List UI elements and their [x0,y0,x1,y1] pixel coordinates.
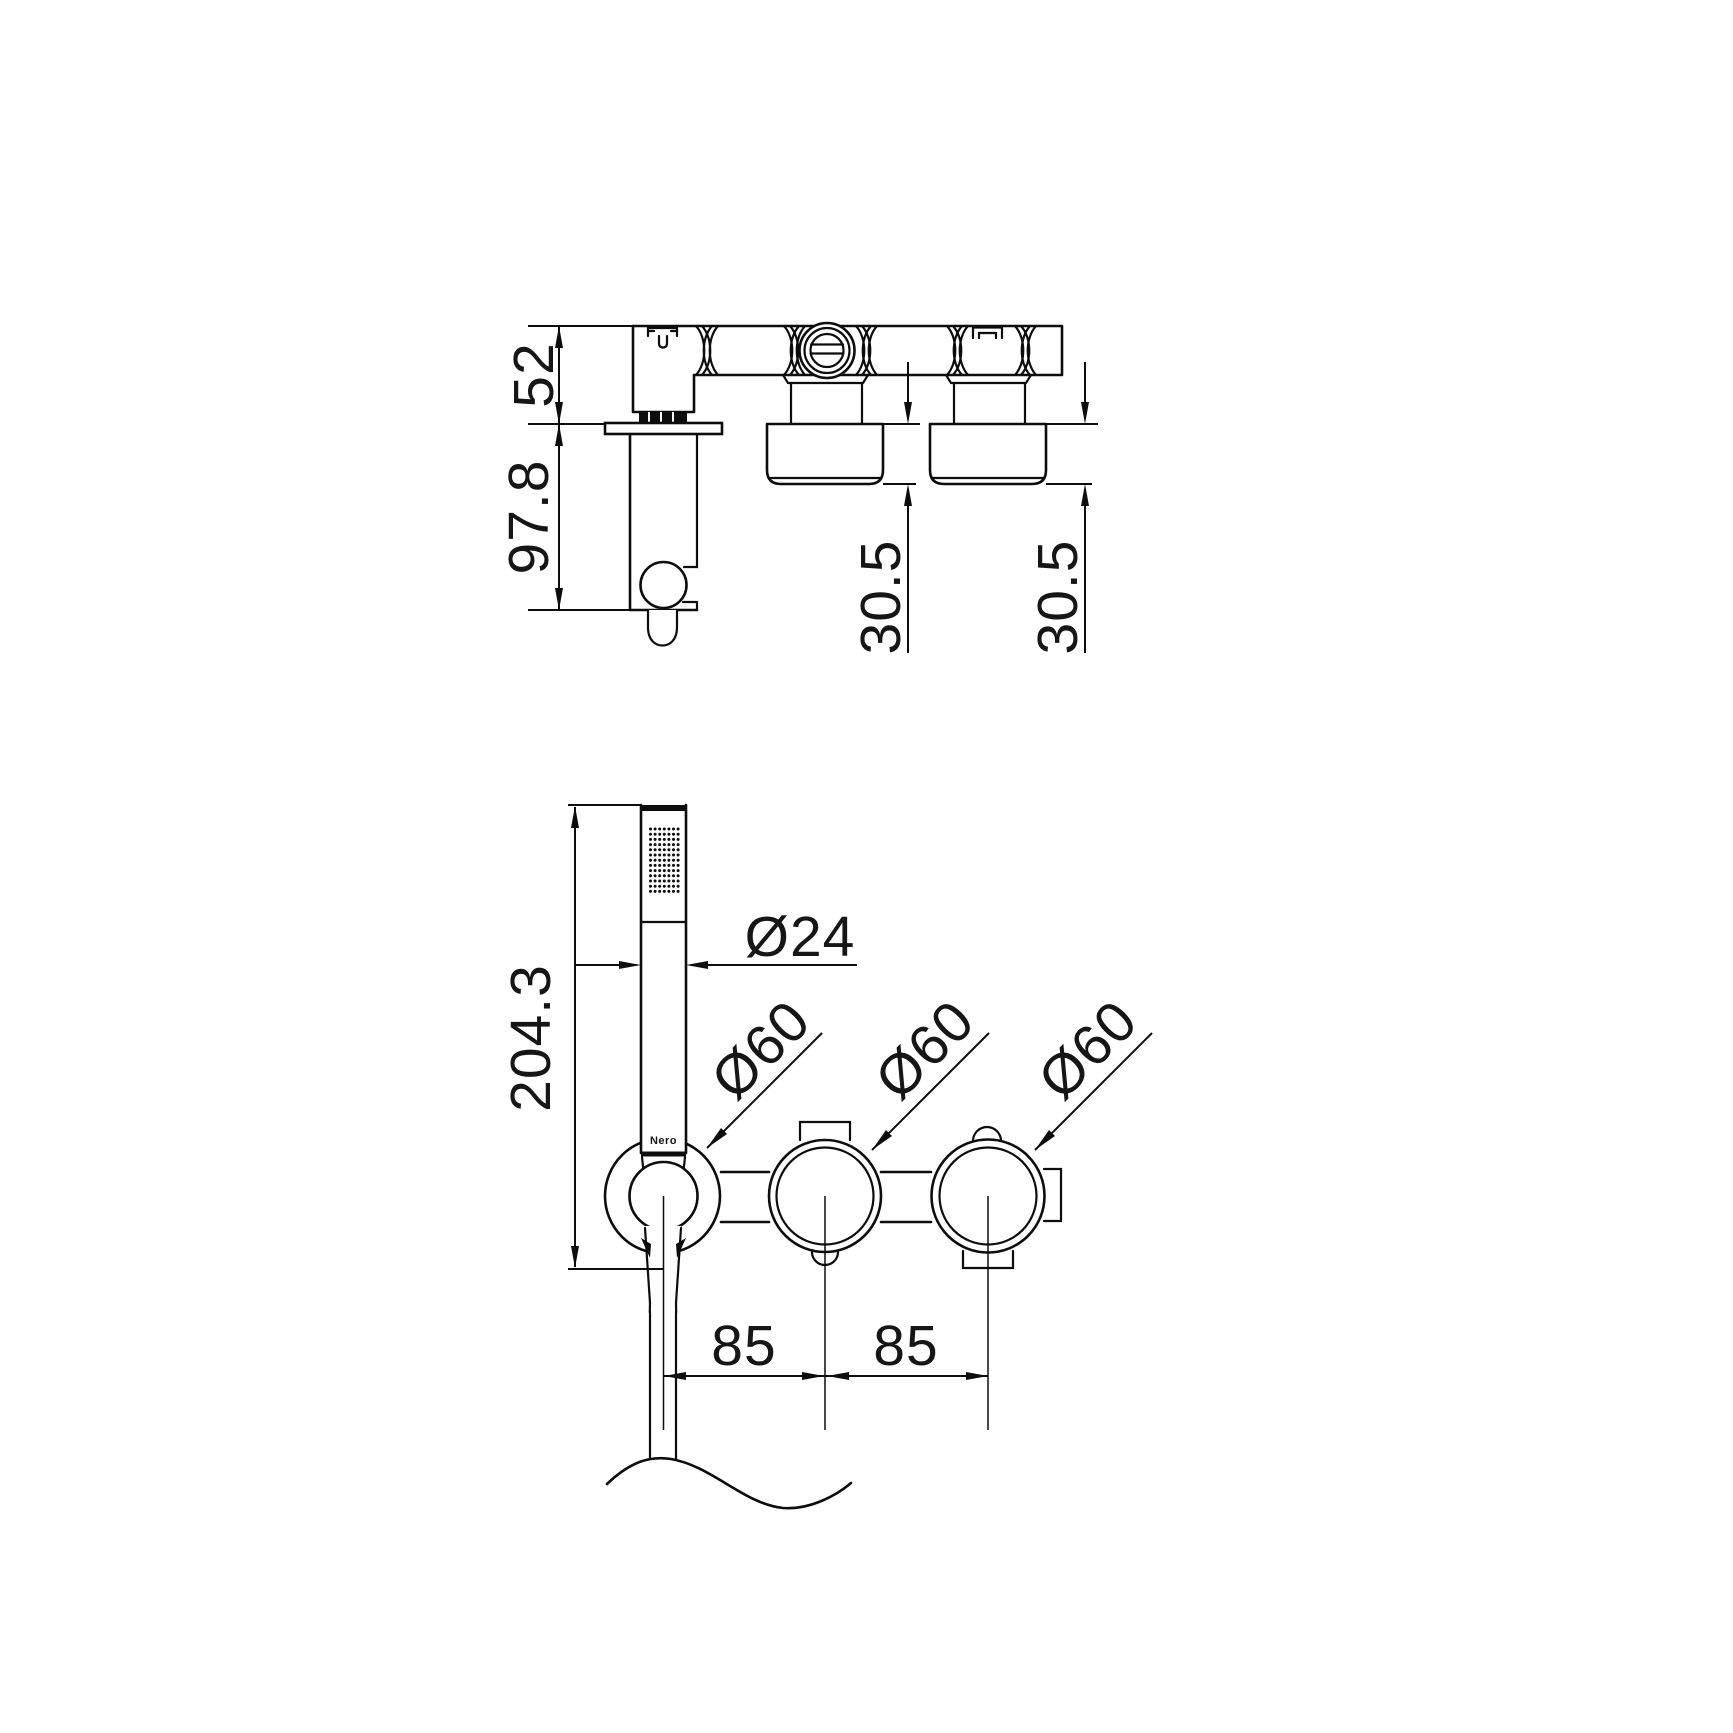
dim-85-right-label: 85 [873,1314,938,1378]
right-side-tab [1044,1169,1061,1221]
spout [648,610,677,646]
dim-85-left-label: 85 [711,1314,776,1378]
brand-label: Nero [650,1135,677,1147]
dim-d60-left-label: Ø60 [699,988,823,1112]
dim-d24-label: Ø24 [745,905,856,969]
centerlines [664,1196,989,1430]
thread-block [639,411,687,423]
side-left-body [633,326,694,412]
wall-flange [605,423,722,434]
side-right-valve [930,375,1046,484]
side-right-clip-detail [979,333,996,338]
side-screw-boss [800,323,855,378]
side-middle-valve [767,375,883,484]
technical-drawing: 52 97.8 30.5 30.5 [0,0,1733,1733]
middle-top-tab [800,1122,850,1140]
dim-d60-right-label: Ø60 [1026,988,1150,1112]
dim-d60-middle-label: Ø60 [863,988,987,1112]
dim-30-5-mid-label: 30.5 [849,540,913,655]
hose-wave [607,1458,851,1508]
drawing-svg: 52 97.8 30.5 30.5 [0,0,1733,1733]
front-view: Nero 204.3 Ø24 [499,805,1152,1508]
side-left-clip-pin [659,336,667,348]
ball-joint [641,562,687,608]
dim-52-label: 52 [502,342,566,407]
dim-30-5-right-label: 30.5 [1026,540,1090,655]
tube-right-wall [684,434,697,567]
dim-97-8-label: 97.8 [497,460,561,575]
dim-204-3-label: 204.3 [499,964,563,1112]
side-view: 52 97.8 30.5 30.5 [497,323,1098,654]
